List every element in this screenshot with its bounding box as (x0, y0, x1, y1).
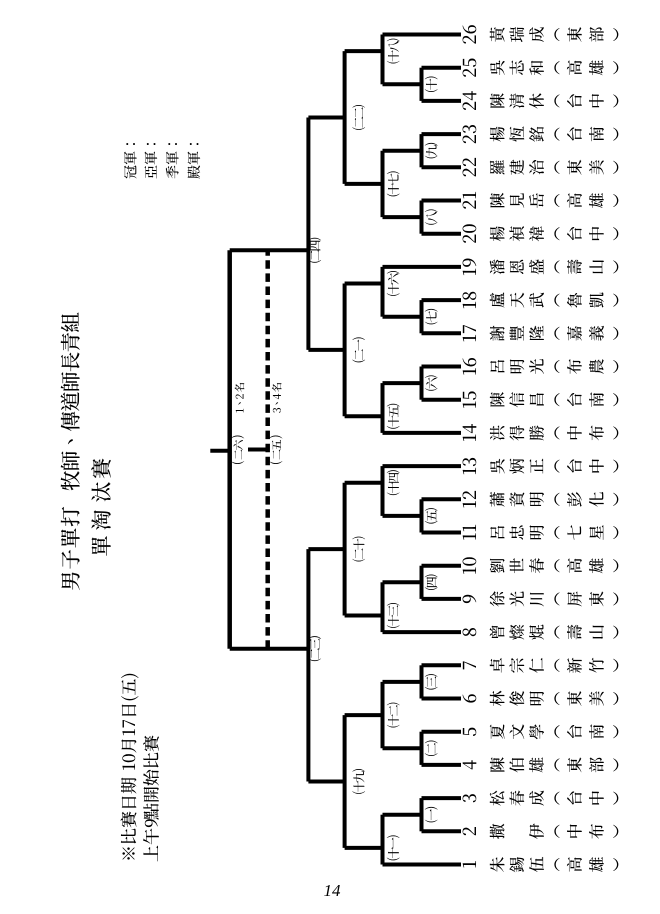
svg-text:14: 14 (324, 881, 342, 900)
